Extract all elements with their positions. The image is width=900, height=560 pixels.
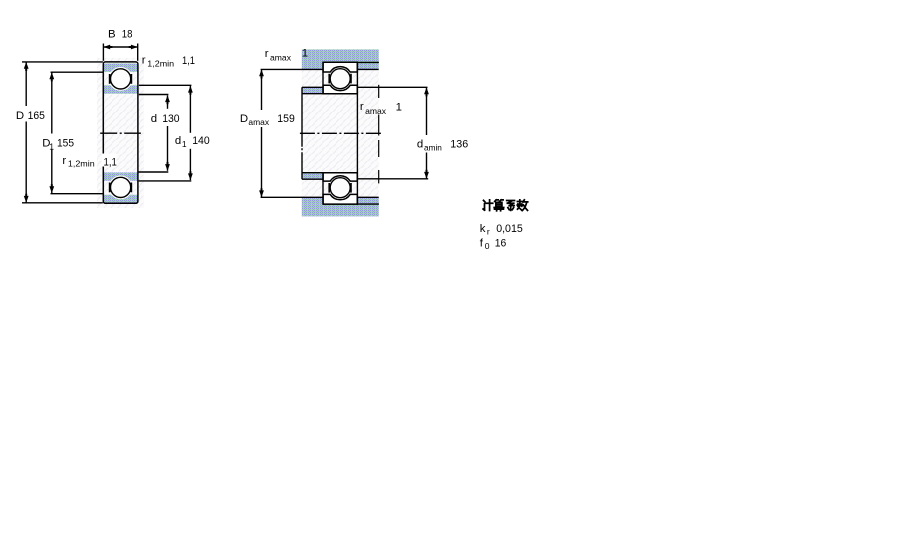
svg-text:amax: amax — [248, 117, 269, 127]
svg-text:D: D — [16, 110, 24, 122]
svg-text:r: r — [360, 101, 364, 113]
svg-text:f: f — [480, 238, 484, 250]
svg-text:1: 1 — [302, 48, 308, 60]
svg-text:D: D — [240, 113, 248, 125]
svg-text:0: 0 — [485, 241, 490, 251]
svg-text:16: 16 — [495, 238, 507, 250]
svg-text:1,2min: 1,2min — [147, 58, 174, 68]
svg-text:r: r — [62, 155, 66, 167]
svg-text:155: 155 — [57, 138, 74, 150]
svg-text:136: 136 — [450, 138, 468, 150]
svg-text:140: 140 — [192, 135, 210, 147]
svg-text:r: r — [265, 48, 269, 60]
svg-text:amin: amin — [424, 143, 442, 153]
svg-text:18: 18 — [122, 29, 133, 41]
svg-text:130: 130 — [162, 113, 179, 125]
svg-text:r: r — [487, 227, 490, 237]
svg-text:1: 1 — [396, 101, 402, 113]
svg-text:r: r — [142, 54, 146, 66]
svg-text:165: 165 — [28, 110, 45, 122]
svg-text:B: B — [108, 29, 116, 41]
svg-text:1: 1 — [182, 139, 187, 149]
svg-text:1,2min: 1,2min — [68, 158, 95, 168]
svg-text:159: 159 — [277, 113, 295, 125]
svg-text:amax: amax — [365, 106, 387, 116]
svg-text:1: 1 — [49, 141, 54, 151]
svg-text:0,015: 0,015 — [496, 223, 523, 235]
svg-text:d: d — [175, 135, 181, 147]
svg-text:k: k — [480, 223, 486, 235]
svg-text:1,1: 1,1 — [182, 55, 195, 67]
svg-text:1,1: 1,1 — [104, 156, 117, 168]
svg-text:d: d — [151, 113, 157, 125]
svg-text:amax: amax — [270, 52, 292, 62]
svg-text:d: d — [417, 138, 423, 150]
